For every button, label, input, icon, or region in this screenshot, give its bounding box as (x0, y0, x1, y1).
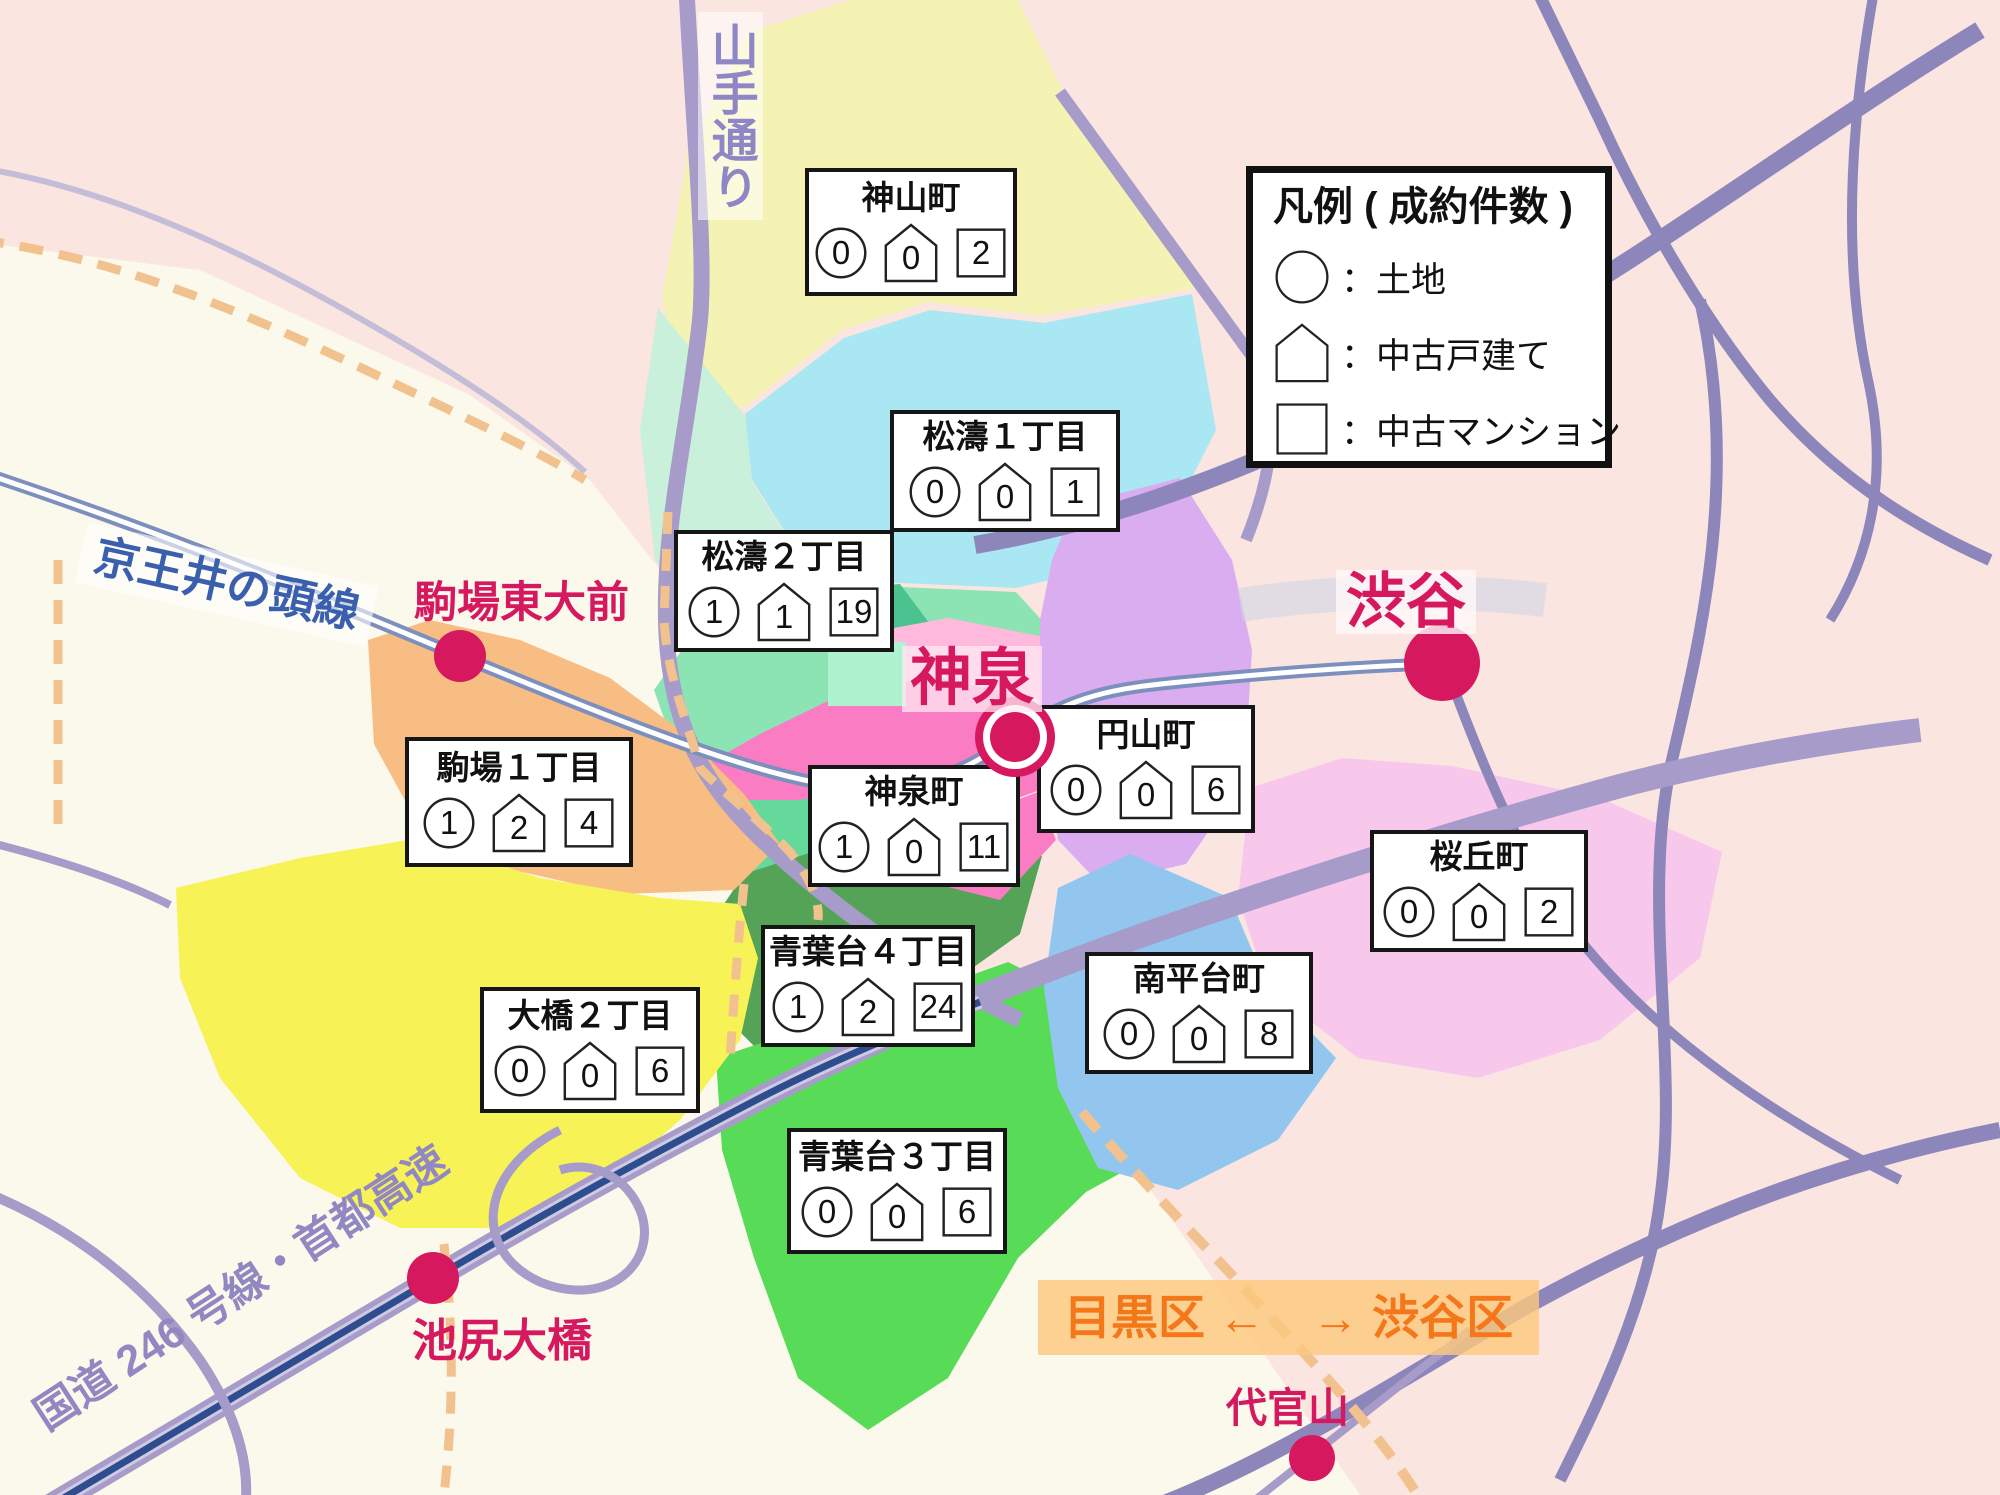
station-dot-shinsen (990, 712, 1040, 762)
house-count-marker: 2 (840, 976, 896, 1038)
area-label-ohashi2: 大橋２丁目 0 0 6 (480, 987, 700, 1113)
house-count-marker: 0 (886, 816, 942, 878)
land-count-marker: 1 (770, 976, 826, 1038)
legend-house-label: ：中古戸建て (1341, 328, 1551, 379)
legend-title: 凡例 ( 成約件数 ) (1273, 174, 1585, 232)
mansion-count-marker: 2 (953, 222, 1009, 284)
legend-row-land: ：土地 (1273, 246, 1585, 308)
area-label-kamiyamacho: 神山町 0 0 2 (805, 168, 1017, 296)
mansion-count-marker: 1 (1047, 461, 1103, 523)
area-label-sakuragaokacho: 桜丘町 0 0 2 (1370, 830, 1588, 952)
area-label-maruyamacho: 円山町 0 0 6 (1037, 705, 1255, 833)
circle-icon (1273, 246, 1331, 308)
legend-row-mansion: ：中古マンション (1273, 398, 1585, 460)
station-label-shinsen: 神泉 (902, 646, 1042, 712)
area-label-komaba1: 駒場１丁目 1 2 4 (405, 737, 633, 867)
land-count-marker: 0 (1048, 759, 1104, 821)
house-count-marker: 0 (562, 1040, 618, 1102)
land-count-marker: 0 (907, 461, 963, 523)
station-dot-daikanyama (1289, 1435, 1335, 1481)
mansion-count-marker: 4 (561, 792, 617, 854)
area-label-aobadai4: 青葉台４丁目 1 2 24 (761, 925, 975, 1047)
mansion-count-marker: 2 (1521, 881, 1577, 943)
legend-mansion-label: ：中古マンション (1341, 404, 1621, 455)
mansion-count-marker: 6 (632, 1040, 688, 1102)
land-count-marker: 0 (1101, 1003, 1157, 1065)
mansion-count-marker: 19 (826, 581, 882, 643)
station-label-ikejiri-ohashi: 池尻大橋 (412, 1318, 592, 1363)
area-label-shinsencho: 神泉町 1 0 11 (808, 765, 1020, 887)
land-count-marker: 1 (686, 581, 742, 643)
legend-land-label: ：土地 (1341, 252, 1446, 303)
land-count-marker: 1 (816, 816, 872, 878)
land-count-marker: 0 (813, 222, 869, 284)
ward-boundary-banner: 目黒区 ← → 渋谷区 (1038, 1280, 1539, 1355)
house-count-marker: 1 (756, 581, 812, 643)
land-count-marker: 0 (1381, 881, 1437, 943)
area-label-shoto1: 松濤１丁目 0 0 1 (890, 410, 1120, 532)
square-icon (1273, 398, 1331, 460)
station-dot-ikejiri-ohashi (407, 1252, 459, 1304)
mansion-count-marker: 11 (956, 816, 1012, 878)
station-label-daikanyama: 代官山 (1226, 1388, 1349, 1429)
mansion-count-marker: 6 (939, 1181, 995, 1243)
station-dot-shibuya (1404, 625, 1480, 701)
house-count-marker: 0 (883, 222, 939, 284)
house-count-marker: 2 (491, 792, 547, 854)
house-count-marker: 0 (869, 1181, 925, 1243)
real-estate-map: 山手通り 京王井の頭線 国道 246 号線・首都高速 目黒区 ← → 渋谷区 駒… (0, 0, 2000, 1495)
land-count-marker: 0 (492, 1040, 548, 1102)
legend-box: 凡例 ( 成約件数 ) ：土地 ：中古戸建て ：中古マンション (1246, 166, 1612, 468)
legend-row-house: ：中古戸建て (1273, 322, 1585, 384)
land-count-marker: 0 (799, 1181, 855, 1243)
road-label-yamate-dori: 山手通り (698, 12, 763, 220)
mansion-count-marker: 6 (1188, 759, 1244, 821)
house-count-marker: 0 (1118, 759, 1174, 821)
house-count-marker: 0 (1451, 881, 1507, 943)
station-label-komaba-todaimae: 駒場東大前 (414, 582, 629, 625)
area-label-nanpeidaicho: 南平台町 0 0 8 (1085, 952, 1313, 1074)
land-count-marker: 1 (421, 792, 477, 854)
house-count-marker: 0 (1171, 1003, 1227, 1065)
station-label-shibuya: 渋谷 (1336, 570, 1476, 634)
mansion-count-marker: 8 (1241, 1003, 1297, 1065)
area-label-shoto2: 松濤２丁目 1 1 19 (674, 530, 894, 652)
house-icon (1273, 322, 1331, 384)
mansion-count-marker: 24 (910, 976, 966, 1038)
house-count-marker: 0 (977, 461, 1033, 523)
station-dot-komaba-todaimae (434, 630, 486, 682)
area-label-aobadai3: 青葉台３丁目 0 0 6 (787, 1128, 1007, 1254)
